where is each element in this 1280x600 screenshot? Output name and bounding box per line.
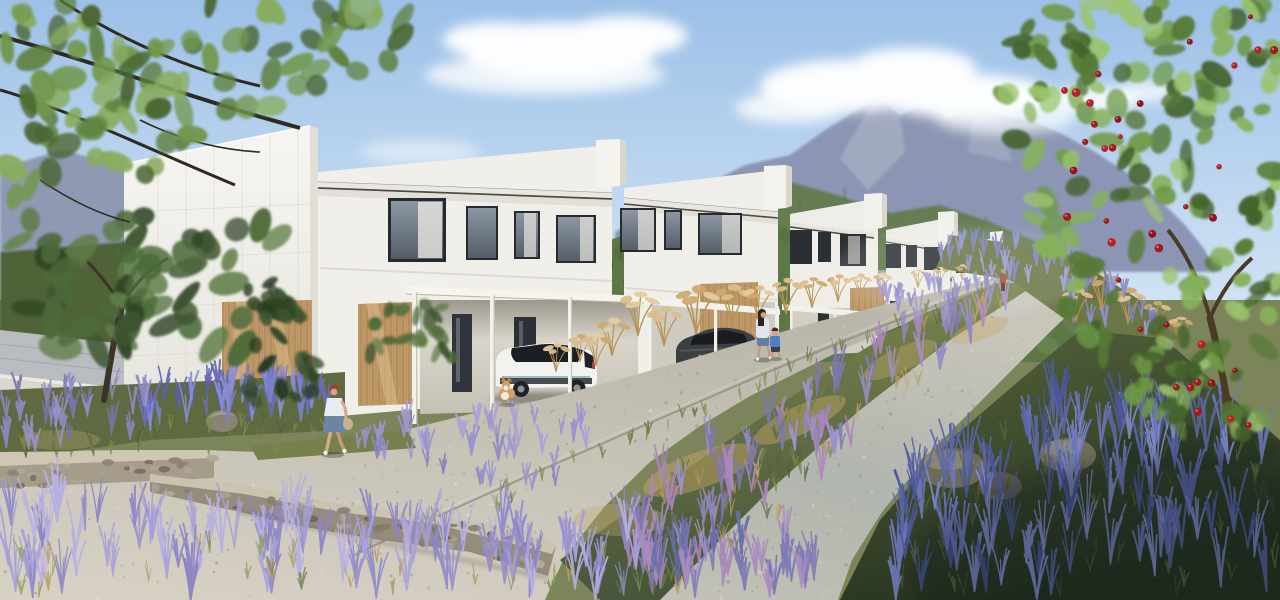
gravel-speckle <box>552 409 554 411</box>
gravel-speckle <box>410 574 413 577</box>
gravel-speckle <box>828 533 830 535</box>
gravel-speckle <box>482 421 485 424</box>
shoulder-bag <box>343 418 353 430</box>
apple-highlight <box>1139 328 1141 330</box>
gravel-speckle <box>562 436 564 438</box>
apple-highlight <box>1232 64 1234 66</box>
gravel-speckle <box>664 401 667 404</box>
gravel-speckle <box>933 359 935 361</box>
gravel-speckle <box>755 390 758 393</box>
gravel-speckle <box>381 476 383 478</box>
gravel-speckle <box>280 549 282 551</box>
gravel-speckle <box>859 474 862 477</box>
gravel-speckle <box>834 457 837 460</box>
gravel-speckle <box>927 389 930 392</box>
gravel-speckle <box>639 439 641 441</box>
gravel-speckle <box>32 498 35 501</box>
apple-fruit <box>1227 415 1234 422</box>
gravel-speckle <box>511 507 513 509</box>
gravel-speckle <box>449 436 451 438</box>
apple-highlight <box>1165 323 1167 325</box>
gravel-speckle <box>584 399 587 402</box>
gravel-speckle <box>132 563 135 566</box>
gravel-speckle <box>543 581 546 584</box>
gravel-speckle <box>467 572 469 574</box>
gravel-speckle <box>227 549 229 551</box>
gravel-speckle <box>963 416 965 418</box>
apple-fruit <box>1086 99 1094 107</box>
gravel-speckle <box>47 491 50 494</box>
gravel-speckle <box>156 581 159 584</box>
apple-fruit <box>1173 384 1180 391</box>
scene-canvas: Hillside townhouse development — photore… <box>0 0 1280 600</box>
gravel-speckle <box>470 581 473 584</box>
gravel-speckle <box>490 503 493 506</box>
cloud <box>563 16 687 56</box>
wall-stone <box>339 513 346 521</box>
apple-fruit <box>1109 144 1117 152</box>
gravel-speckle <box>972 406 974 408</box>
gravel-speckle <box>724 382 727 385</box>
gravel-speckle <box>746 389 748 391</box>
gravel-speckle <box>401 580 404 583</box>
apple-fruit <box>1194 378 1202 386</box>
gravel-speckle <box>88 558 91 561</box>
apple-fruit <box>1137 326 1143 332</box>
gravel-speckle <box>795 578 797 580</box>
gravel-speckle <box>972 404 974 406</box>
legs <box>1001 283 1005 291</box>
wall-stone <box>102 459 114 466</box>
gravel-speckle <box>379 553 381 555</box>
apple-highlight <box>1119 135 1121 137</box>
gravel-speckle <box>760 576 762 578</box>
gravel-speckle <box>1001 365 1003 367</box>
gravel-speckle <box>174 502 177 505</box>
gravel-speckle <box>52 522 54 524</box>
gravel-speckle <box>772 546 774 548</box>
gravel-speckle <box>532 452 534 454</box>
gravel-speckle <box>889 412 892 415</box>
gravel-speckle <box>633 443 635 445</box>
apple-highlight <box>1083 140 1085 142</box>
gravel-speckle <box>912 418 914 420</box>
gravel-speckle <box>401 488 403 490</box>
gravel-speckle <box>449 446 451 448</box>
wall-stone <box>30 475 36 482</box>
gravel-speckle <box>500 479 503 482</box>
gravel-speckle <box>825 589 827 591</box>
gravel-speckle <box>838 463 841 466</box>
apple-highlight <box>1174 385 1176 387</box>
gravel-speckle <box>666 373 668 375</box>
wall-stone <box>144 460 153 465</box>
apple-fruit <box>1118 134 1123 139</box>
gravel-speckle <box>719 590 720 591</box>
apple-fruit <box>1103 218 1109 224</box>
gravel-speckle <box>528 517 530 519</box>
apple-fruit <box>1164 322 1170 328</box>
gravel-speckle <box>445 499 448 502</box>
apple-fruit <box>1216 164 1222 170</box>
gravel-speckle <box>679 391 682 394</box>
apple-fruit <box>1091 121 1098 128</box>
wall-stone <box>71 479 83 483</box>
gravel-speckle <box>575 391 577 393</box>
gravel-speckle <box>34 592 37 595</box>
post-shade <box>494 295 495 414</box>
gravel-speckle <box>183 549 186 552</box>
gravel-speckle <box>437 464 439 466</box>
gravel-speckle <box>893 397 896 400</box>
gravel-speckle <box>364 464 366 466</box>
gravel-speckle <box>249 596 251 598</box>
gravel-speckle <box>540 489 541 490</box>
gravel-speckle <box>330 570 332 572</box>
gravel-speckle <box>623 412 625 414</box>
gravel-speckle <box>975 385 978 388</box>
gravel-speckle <box>251 519 253 521</box>
gravel-speckle <box>336 497 339 500</box>
gravel-speckle <box>828 514 831 517</box>
gravel-speckle <box>213 537 216 540</box>
apple-highlight <box>1117 278 1119 280</box>
gravel-speckle <box>823 490 825 492</box>
apple-fruit <box>1063 213 1071 221</box>
wall-stone <box>64 463 70 467</box>
apple-highlight <box>1188 385 1190 387</box>
dog-chest <box>501 392 509 400</box>
wall-stone <box>158 466 170 472</box>
gravel-speckle <box>534 531 536 533</box>
apple-fruit <box>1061 87 1068 94</box>
gravel-speckle <box>891 314 892 315</box>
apple-fruit <box>1148 230 1156 238</box>
gravel-speckle <box>376 548 378 550</box>
apple-highlight <box>1249 15 1250 16</box>
apple-highlight <box>1256 48 1258 50</box>
parapet-fin-side <box>620 139 626 186</box>
gravel-speckle <box>496 581 498 583</box>
gravel-speckle <box>695 424 698 427</box>
gravel-speckle <box>655 403 658 406</box>
apple-fruit <box>1187 39 1193 45</box>
gravel-speckle <box>22 577 24 579</box>
gravel-speckle <box>213 450 215 452</box>
apple-highlight <box>1116 117 1118 119</box>
gravel-speckle <box>716 407 718 409</box>
apple-fruit <box>1231 62 1237 68</box>
gravel-speckle <box>379 478 382 481</box>
gravel-speckle <box>811 504 814 507</box>
gravel-speckle <box>833 470 835 472</box>
gravel-speckle <box>751 355 753 357</box>
gravel-speckle <box>582 503 585 506</box>
gravel-speckle <box>794 493 796 495</box>
shoe <box>756 357 759 360</box>
gravel-speckle <box>756 586 758 588</box>
gravel-speckle <box>199 506 201 508</box>
apple-highlight <box>1065 214 1067 216</box>
gravel-speckle <box>862 535 864 537</box>
wall-stone <box>176 461 184 468</box>
gravel-speckle <box>505 473 508 476</box>
gravel-speckle <box>895 324 897 326</box>
gravel-speckle <box>546 517 548 519</box>
gravel-speckle <box>506 425 507 426</box>
cloud <box>443 22 553 58</box>
gravel-speckle <box>794 514 796 516</box>
apple-fruit <box>1197 340 1205 348</box>
gravel-speckle <box>928 359 930 361</box>
gravel-speckle <box>123 576 125 578</box>
gravel-speckle <box>418 500 420 502</box>
gravel-speckle <box>870 490 873 493</box>
apple-highlight <box>1199 342 1201 344</box>
gravel-speckle <box>1016 325 1019 328</box>
apple-highlight <box>1105 219 1107 221</box>
car-taillight <box>592 362 595 368</box>
apple-fruit <box>1155 244 1164 253</box>
apple-highlight <box>1062 88 1064 90</box>
gravel-speckle <box>550 410 552 412</box>
gravel-speckle <box>818 491 820 493</box>
wall-stone <box>17 468 27 474</box>
upper-windows <box>620 208 742 255</box>
gravel-speckle <box>376 463 379 466</box>
gravel-speckle <box>469 505 472 508</box>
gravel-speckle <box>853 498 856 501</box>
gravel-speckle <box>851 507 854 510</box>
apple-fruit <box>1270 46 1278 54</box>
gravel-speckle <box>762 521 764 523</box>
gravel-speckle <box>217 554 219 556</box>
gravel-speckle <box>214 582 216 584</box>
gravel-speckle <box>602 496 604 498</box>
gravel-speckle <box>883 420 885 422</box>
apple-fruit <box>1115 116 1122 123</box>
parapet-fin-side <box>786 165 792 208</box>
gravel-speckle <box>843 519 847 523</box>
shoe <box>323 451 327 455</box>
apple-fruit <box>1107 238 1115 246</box>
apple-fruit <box>1245 422 1251 428</box>
gravel-speckle <box>641 382 643 384</box>
gravel-speckle <box>121 564 124 567</box>
gravel-speckle <box>953 362 955 364</box>
gravel-speckle <box>70 490 72 492</box>
apple-fruit <box>1183 204 1188 209</box>
child-shirt <box>770 336 780 347</box>
gravel-speckle <box>934 380 936 382</box>
apple-highlight <box>1184 205 1186 207</box>
gravel-speckle <box>502 454 504 456</box>
parapet-fin <box>864 193 882 230</box>
gravel-speckle <box>950 412 953 415</box>
gravel-speckle <box>88 518 90 520</box>
wall-stone <box>124 466 130 471</box>
gravel-speckle <box>793 485 794 486</box>
gravel-speckle <box>718 591 720 593</box>
apple-highlight <box>1150 231 1152 233</box>
apple-fruit <box>1095 71 1101 77</box>
gravel-speckle <box>961 390 964 393</box>
apple-fruit <box>1101 145 1108 152</box>
gravel-speckle <box>698 355 701 358</box>
apple-highlight <box>1103 147 1105 149</box>
gravel-speckle <box>948 387 949 388</box>
gravel-speckle <box>4 570 7 573</box>
gravel-speckle <box>640 412 643 415</box>
gravel-speckle <box>222 475 224 477</box>
apple-fruit <box>1187 384 1195 392</box>
gravel-speckle <box>398 472 401 475</box>
gravel-speckle <box>878 425 880 427</box>
post-shade <box>571 297 572 404</box>
gravel-speckle <box>116 507 119 510</box>
gravel-speckle <box>472 469 474 471</box>
gravel-speckle <box>1011 357 1014 360</box>
apple-fruit <box>1070 167 1078 175</box>
apple-fruit <box>1232 368 1237 373</box>
apple-highlight <box>1272 48 1274 50</box>
gravel-speckle <box>156 560 158 562</box>
gravel-speckle <box>593 405 596 408</box>
gravel-speckle <box>463 472 467 476</box>
gravel-speckle <box>649 409 652 412</box>
face <box>331 389 338 396</box>
gravel-speckle <box>1057 322 1058 323</box>
gravel-speckle <box>210 572 213 575</box>
gravel-speckle <box>454 482 457 485</box>
gravel-speckle <box>956 387 959 390</box>
dog-muzzle <box>504 385 508 390</box>
gravel-speckle <box>751 590 753 592</box>
gravel-speckle <box>432 593 434 595</box>
gravel-speckle <box>164 496 166 498</box>
gravel-speckle <box>915 441 917 443</box>
gravel-speckle <box>726 580 730 584</box>
gravel-speckle <box>252 484 255 487</box>
apple-highlight <box>1109 240 1112 243</box>
gravel-speckle <box>873 435 875 437</box>
gravel-speckle <box>970 348 973 351</box>
gravel-speckle <box>352 477 355 480</box>
gravel-speckle <box>665 438 668 441</box>
gravel-speckle <box>502 585 504 587</box>
gravel-speckle <box>882 427 884 429</box>
apple-highlight <box>1217 165 1219 167</box>
gravel-speckle <box>968 389 970 391</box>
gravel-speckle <box>853 476 855 478</box>
gravel-speckle <box>451 474 453 476</box>
gravel-speckle <box>945 358 947 360</box>
gravel-speckle <box>960 362 962 364</box>
gravel-speckle <box>594 457 596 459</box>
apple-highlight <box>1096 72 1098 74</box>
gravel-speckle <box>705 583 707 585</box>
apple-highlight <box>1211 215 1213 217</box>
gravel-speckle <box>978 360 980 362</box>
gravel-speckle <box>829 321 831 323</box>
torso <box>1000 274 1006 284</box>
apple-highlight <box>1209 381 1211 383</box>
apple-highlight <box>1088 101 1090 103</box>
gravel-speckle <box>473 475 476 478</box>
gravel-speckle <box>618 423 620 425</box>
gravel-speckle <box>1022 339 1024 341</box>
gravel-speckle <box>252 452 254 454</box>
gravel-speckle <box>824 330 825 331</box>
gravel-speckle <box>647 450 650 453</box>
cloud <box>735 93 845 123</box>
apple-highlight <box>1195 409 1197 411</box>
parapet-fin <box>764 165 786 210</box>
gravel-speckle <box>892 457 894 459</box>
gravel-speckle <box>993 367 995 369</box>
gravel-speckle <box>566 443 568 445</box>
apple-highlight <box>1195 380 1197 382</box>
apple-fruit <box>1137 100 1144 107</box>
gravel-speckle <box>390 574 393 577</box>
shoe <box>342 449 346 453</box>
architectural-rendering: Hillside townhouse development — photore… <box>0 0 1280 600</box>
gravel-speckle <box>856 516 858 518</box>
door-reflection <box>456 318 460 382</box>
gravel-speckle <box>358 501 360 503</box>
apple-highlight <box>1092 122 1094 124</box>
gravel-speckle <box>568 418 571 421</box>
gravel-speckle <box>931 396 933 398</box>
gravel-speckle <box>452 434 455 437</box>
wheel-hub <box>518 386 525 393</box>
gravel-speckle <box>509 423 511 425</box>
gravel-speckle <box>703 372 706 375</box>
gravel-speckle <box>610 488 612 490</box>
gravel-speckle <box>823 517 825 519</box>
apple-highlight <box>1073 90 1076 93</box>
cloud <box>425 55 665 95</box>
gravel-speckle <box>320 572 323 575</box>
apple-fruit <box>1072 88 1081 97</box>
gravel-speckle <box>885 401 888 404</box>
gravel-speckle <box>814 593 817 596</box>
gravel-speckle <box>817 471 819 473</box>
apple-highlight <box>1229 417 1231 419</box>
gravel-speckle <box>790 335 792 337</box>
gravel-speckle <box>351 502 354 505</box>
gravel-speckle <box>679 374 682 377</box>
gravel-speckle <box>854 487 856 489</box>
gravel-speckle <box>806 462 808 464</box>
parapet-fin-side <box>882 193 887 228</box>
gravel-speckle <box>583 494 585 496</box>
gravel-speckle <box>569 509 572 512</box>
gravel-speckle <box>170 572 173 575</box>
gravel-speckle <box>825 515 827 517</box>
gravel-speckle <box>70 576 72 578</box>
gravel-speckle <box>626 383 629 386</box>
gravel-speckle <box>817 596 820 599</box>
gravel-speckle <box>427 587 431 591</box>
apple-fruit <box>1208 379 1216 387</box>
gravel-speckle <box>947 360 949 362</box>
gravel-speckle <box>101 550 103 552</box>
gravel-speckle <box>862 440 863 441</box>
gravel-speckle <box>793 329 797 333</box>
gravel-speckle <box>849 480 851 482</box>
gravel-speckle <box>924 393 926 395</box>
